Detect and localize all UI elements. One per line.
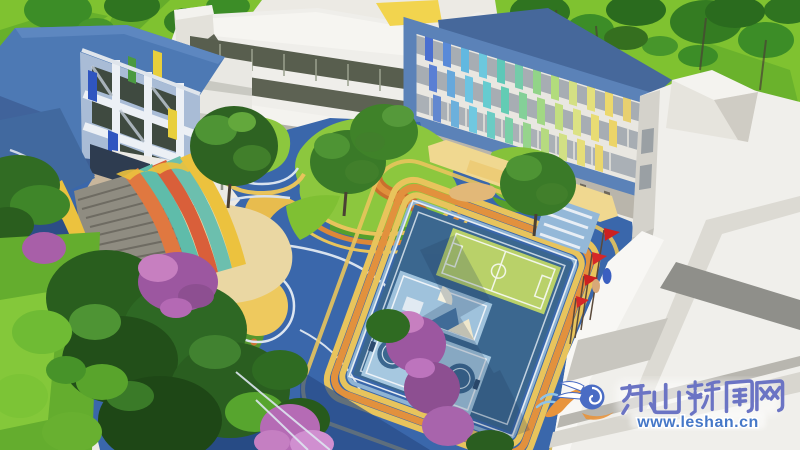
svg-text:www.leshan.cn: www.leshan.cn (636, 414, 759, 431)
